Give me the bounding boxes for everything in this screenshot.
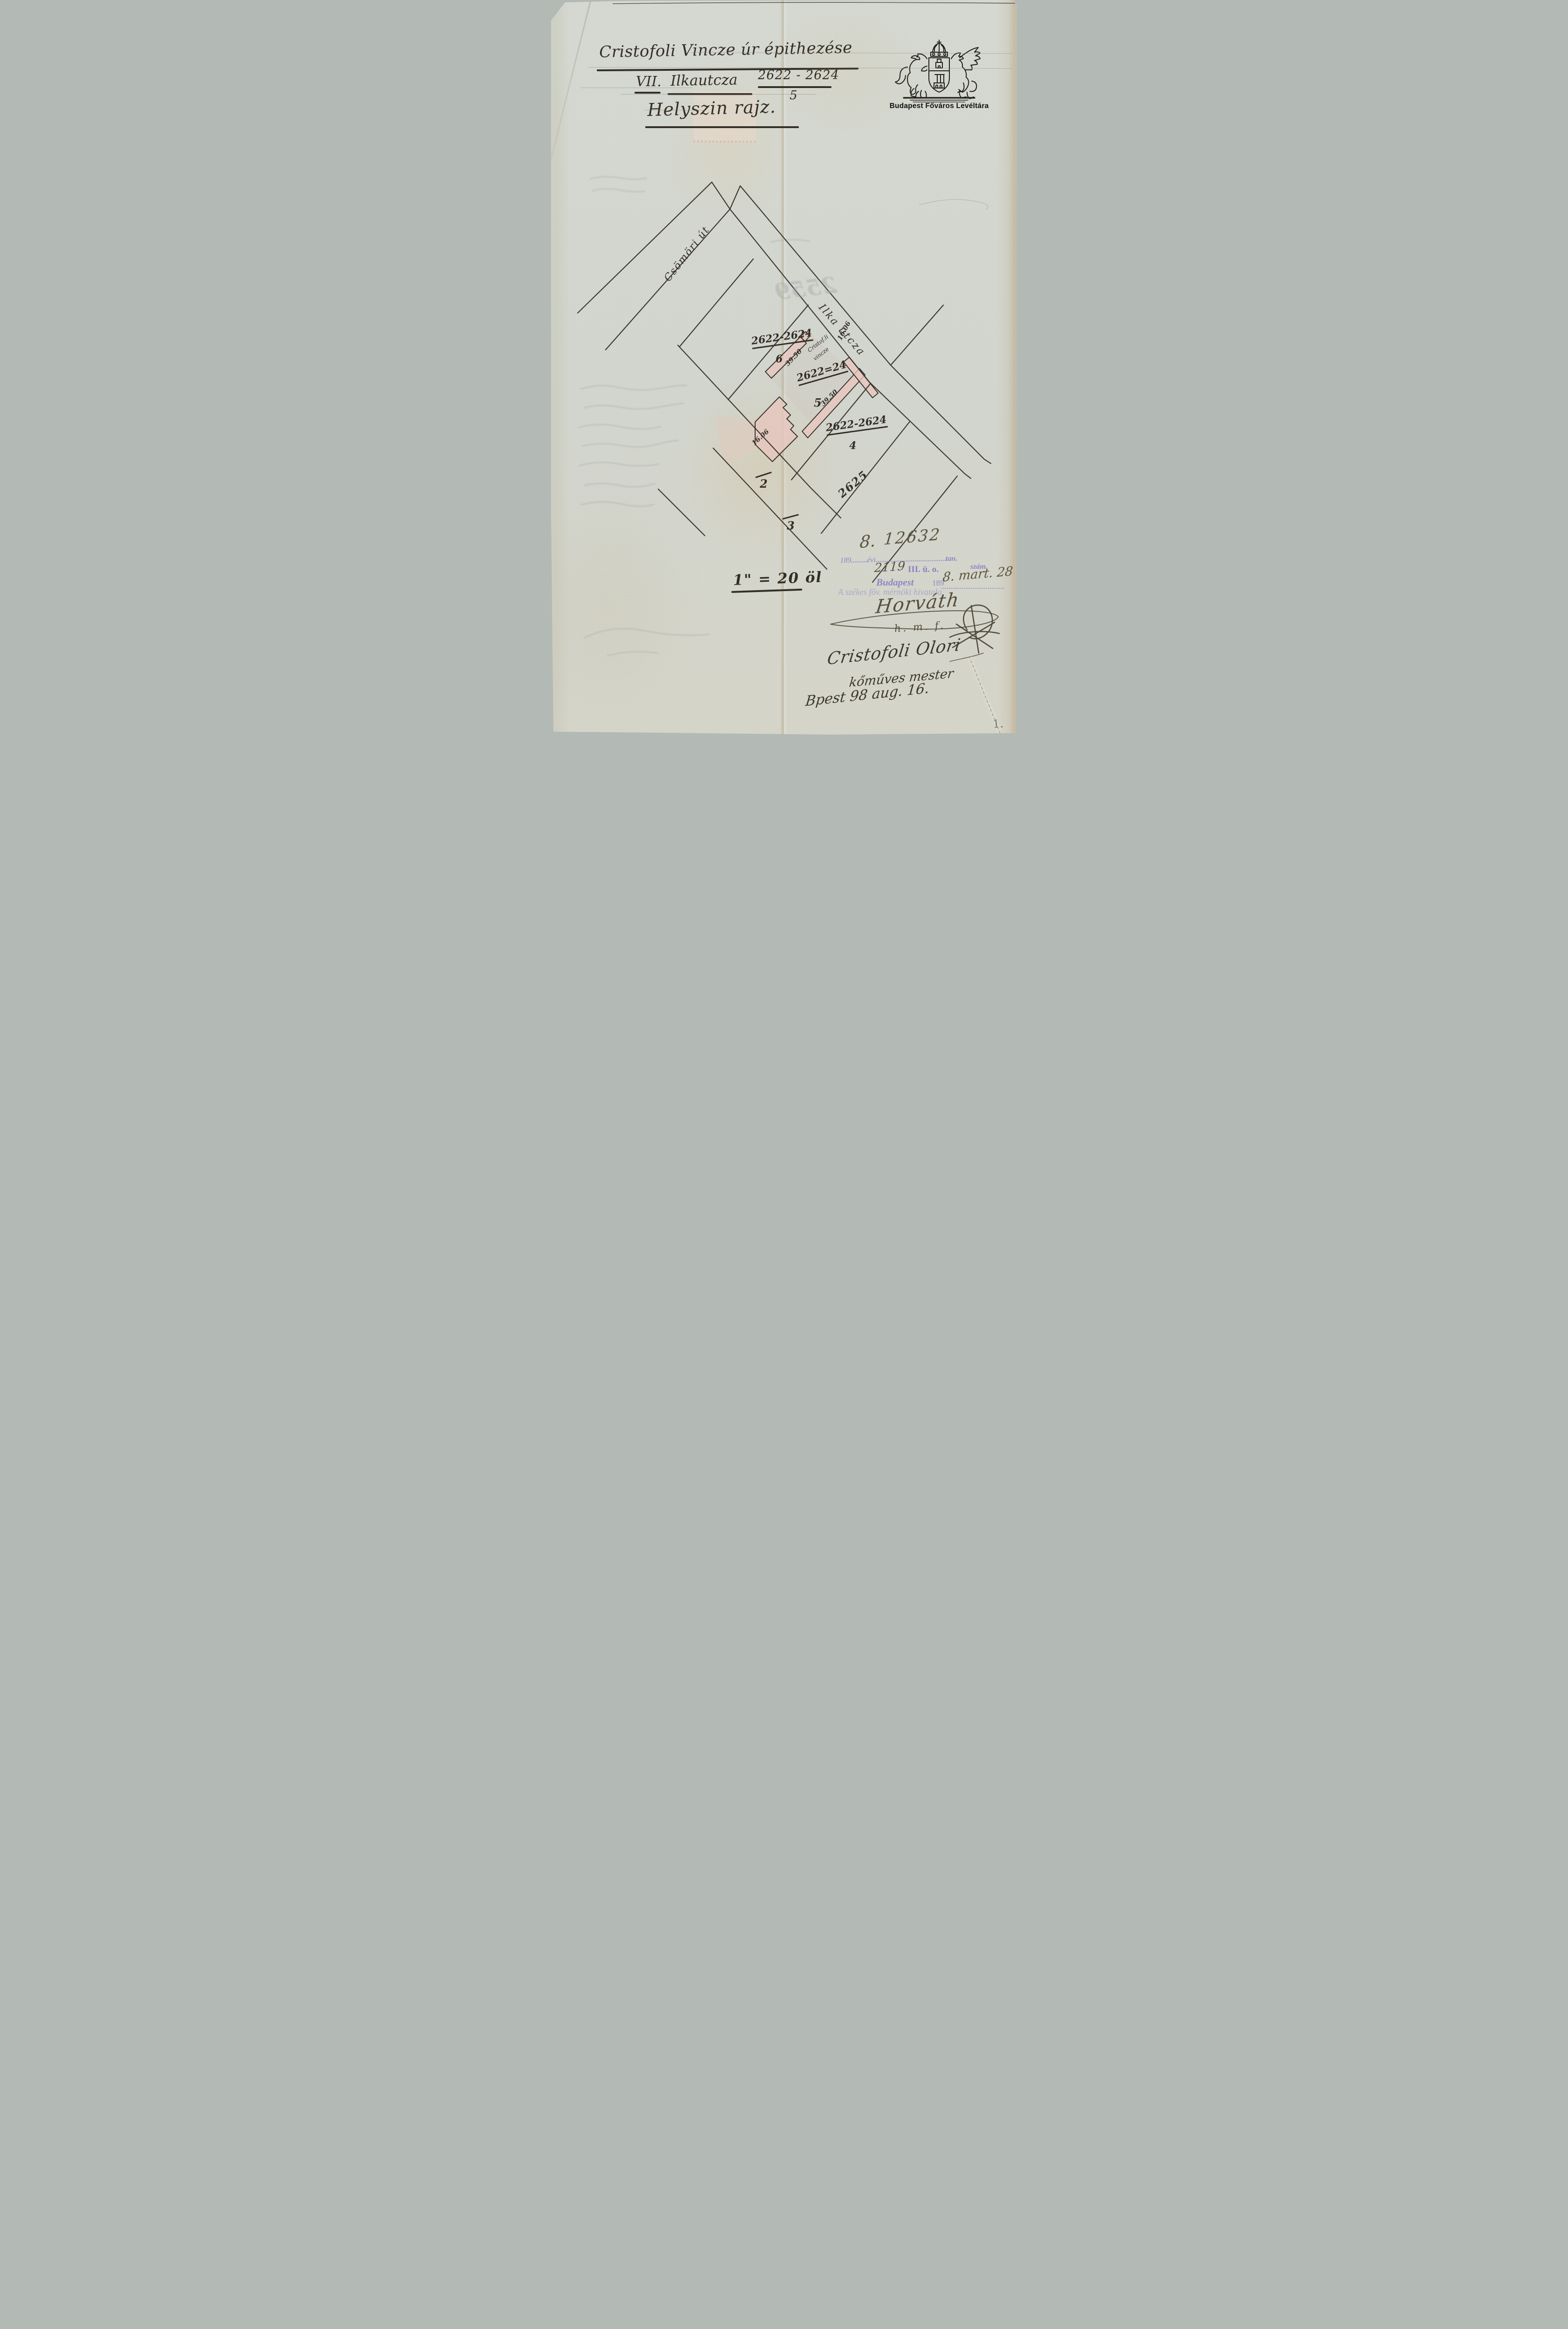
title-lot-number: 2622 - 2624 — [758, 68, 839, 82]
stamp-tan: tan. — [946, 555, 958, 563]
plot-label-3: 3 — [787, 519, 795, 532]
stamp-city: Budapest — [876, 577, 914, 588]
date-dotted-line — [941, 588, 1004, 589]
pencil-scribble — [919, 199, 988, 210]
plot-label-2: 2 — [760, 477, 768, 490]
lot-underline — [758, 86, 832, 88]
registry-entry-prefix: 8. — [859, 531, 876, 552]
crown-icon — [931, 40, 948, 56]
small-boundary-line — [658, 489, 705, 536]
top-rule-line — [613, 2, 1015, 4]
title-street: Ilkautcza — [670, 71, 738, 89]
budapest-coat-of-arms — [889, 38, 989, 102]
archive-caption: Budapest Főváros Levéltára — [889, 102, 989, 110]
scanner-bed: Budapest Főváros Levéltára Cristofoli Vi… — [551, 0, 1017, 735]
title-lot-sub: 5 — [790, 89, 798, 102]
plot-label-4-den: 4 — [849, 440, 856, 452]
building-stepped-rear — [755, 397, 798, 462]
title-subtitle: Helyszin rajz. — [647, 96, 776, 120]
guide-line — [621, 94, 817, 95]
dotted-leader — [851, 554, 867, 563]
plot-label-6-den: 6 — [776, 353, 783, 365]
griffin-supporter-icon — [951, 48, 980, 99]
shield-icon — [929, 58, 949, 92]
subtitle-underline — [645, 126, 799, 128]
guide-line — [581, 88, 693, 88]
rear-parallel-line — [713, 448, 827, 569]
stamp-year-prefix: 189 — [840, 557, 851, 565]
document-page: Budapest Főváros Levéltára Cristofoli Vi… — [551, 0, 1017, 735]
district-underline — [634, 92, 661, 94]
plot-boundary-1 — [680, 259, 753, 347]
road-fork-line — [712, 182, 740, 209]
scale-note: 1" = 20 öl — [733, 569, 823, 589]
lion-supporter-icon — [895, 54, 927, 98]
guide-line — [644, 110, 705, 110]
compartment-base — [904, 98, 975, 102]
stamp-office-ref: III. ü. o. — [908, 565, 939, 575]
registry-ref-number: 2119 — [874, 559, 906, 575]
cross-street-line — [891, 305, 943, 365]
